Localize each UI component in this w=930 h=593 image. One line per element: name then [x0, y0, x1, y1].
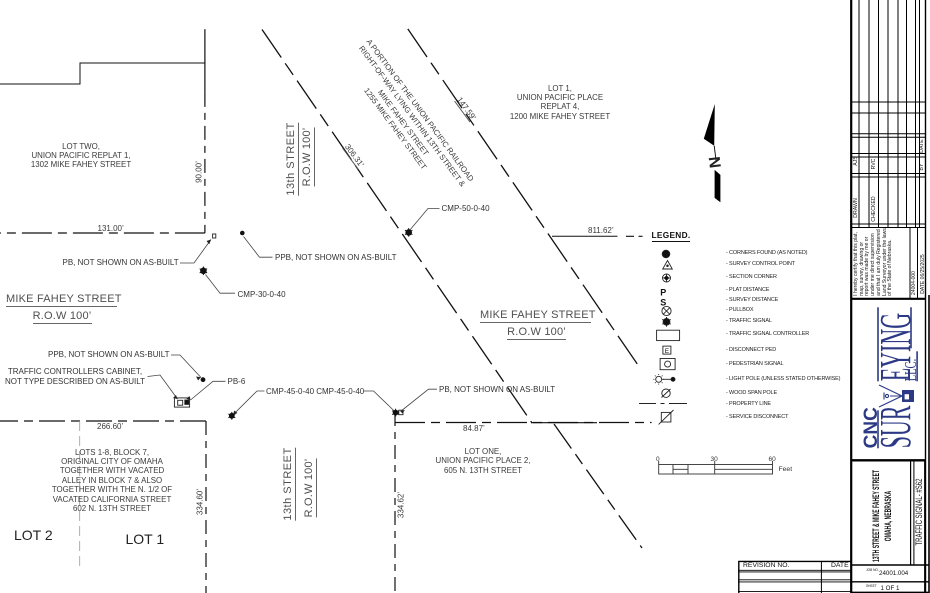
svg-text:E: E: [665, 348, 670, 355]
svg-text:P: P: [660, 287, 666, 297]
svg-text:S: S: [660, 297, 666, 307]
svg-text:LLC.: LLC.: [902, 358, 921, 381]
svg-text:N: N: [705, 156, 723, 170]
